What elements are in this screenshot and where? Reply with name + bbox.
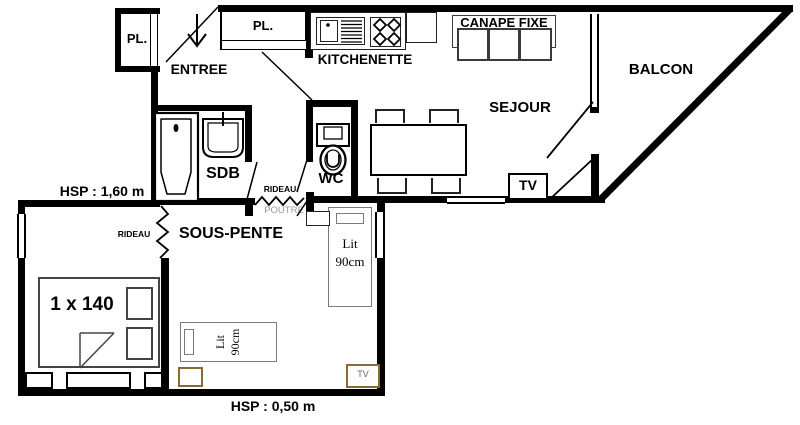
chair: [431, 178, 461, 194]
kitchenette-label: KITCHENETTE: [306, 53, 424, 67]
rideau-hall-label: RIDEAU: [257, 185, 303, 194]
sofa-cushion: [488, 28, 520, 61]
wall-segment: [18, 200, 160, 207]
wall-segment: [151, 198, 255, 205]
entree-label: ENTREE: [163, 62, 235, 77]
door-swing-balcony: [550, 158, 594, 199]
curtain-zigzag-bedroom: [157, 206, 168, 258]
balcony-diagonal-wall: [601, 8, 791, 199]
chair: [429, 109, 459, 123]
bed-bottom-label: Lit 90cm: [213, 314, 243, 370]
pillow: [184, 329, 194, 355]
toilet-tank: [317, 124, 349, 146]
rideau-bedroom-label: RIDEAU: [112, 230, 156, 239]
bed-nook-label: Lit 90cm: [328, 235, 372, 271]
washbasin: [203, 119, 243, 157]
bathtub-faucet: [174, 124, 179, 132]
toilet-tank-inner: [324, 127, 342, 139]
storage-box: [178, 367, 203, 387]
window: [375, 212, 385, 258]
closet-entry-label: PL.: [116, 32, 158, 46]
wall-segment: [245, 105, 252, 162]
stove: [370, 17, 401, 47]
washbasin-inner: [208, 123, 238, 152]
wall-segment: [151, 105, 251, 111]
nightstand: [306, 211, 330, 226]
poutre-label: POUTRE: [261, 206, 307, 216]
pillow: [126, 327, 153, 360]
under-bed-unit: [25, 372, 53, 389]
sous-pente-label: SOUS-PENTE: [170, 226, 292, 243]
under-bed-unit: [66, 372, 131, 389]
under-bed-unit: [144, 372, 163, 389]
bathtub: [155, 113, 198, 201]
wall-segment: [351, 100, 358, 203]
dining-table: [370, 124, 467, 176]
chair: [377, 178, 407, 194]
window: [17, 214, 26, 258]
sdb-label: SDB: [200, 166, 246, 183]
sofa-cushion: [457, 28, 489, 61]
canape-label: CANAPE FIXE: [452, 16, 556, 30]
closet-hall-label: PL.: [238, 19, 288, 33]
toilet-bowl-inner: [325, 150, 341, 170]
wall-segment: [220, 8, 222, 50]
hsp-lower-label: HSP : 0,50 m: [222, 399, 324, 414]
wall-segment: [18, 389, 385, 396]
curtain-zigzag-hall: [255, 197, 304, 205]
bed-double-label: 1 x 140: [42, 295, 122, 315]
wall-segment: [245, 198, 253, 216]
sejour-label: SEJOUR: [484, 100, 556, 116]
wall-segment: [591, 154, 599, 200]
entree-arrow-head: [188, 34, 206, 46]
wc-label: WC: [312, 171, 350, 187]
pillow: [336, 213, 364, 224]
balcon-label: BALCON: [620, 62, 702, 78]
window: [447, 196, 505, 204]
floor-plan: TV Lit 90cm Lit 90cm 1 x 140 TV PL. PL. …: [0, 0, 800, 425]
kitchen-counter-return: [406, 12, 437, 43]
closet-sliding-door: [222, 40, 306, 50]
pillow: [126, 287, 153, 320]
door-leaf-kitchen: [262, 52, 312, 100]
sofa-cushion: [519, 28, 552, 61]
wall-segment: [306, 102, 313, 162]
toilet-seat: [327, 154, 339, 167]
tv-sous-pente-label: TV: [346, 370, 380, 379]
door-leaf-sdb: [246, 162, 257, 203]
door-leaf-entree: [166, 7, 218, 62]
tv-sejour-label: TV: [508, 178, 548, 193]
window-balcony: [590, 14, 599, 107]
chair: [375, 109, 405, 123]
sink-basin: [320, 20, 338, 42]
bathtub-inner: [161, 119, 191, 194]
hsp-upper-label: HSP : 1,60 m: [48, 184, 156, 199]
wall-segment: [590, 106, 599, 113]
